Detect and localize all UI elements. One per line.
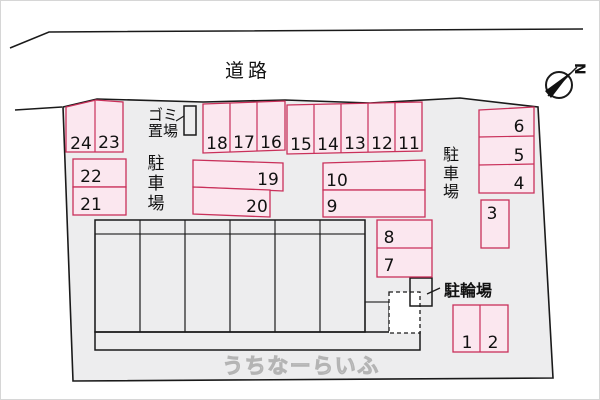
- road-label: 道路: [225, 60, 271, 82]
- bicycle-label: 駐輪場: [444, 281, 492, 300]
- space-number-11: 11: [398, 134, 420, 154]
- space-number-23: 23: [98, 133, 120, 153]
- space-number-13: 13: [344, 134, 366, 154]
- space-number-4: 4: [514, 174, 525, 194]
- space-number-24: 24: [70, 134, 92, 154]
- parking-space-6-4: [479, 107, 534, 193]
- space-number-21: 21: [80, 195, 102, 215]
- space-number-10: 10: [326, 171, 348, 191]
- parking-label-right: 駐 車 場: [443, 145, 459, 201]
- parking-right-char-1: 駐: [443, 145, 459, 164]
- space-number-1: 1: [462, 333, 473, 353]
- parking-layout-svg: 道路: [0, 0, 600, 400]
- space-number-8: 8: [384, 228, 395, 248]
- parking-left-char-1: 駐: [148, 154, 165, 174]
- watermark: うちなーらいふ: [222, 354, 380, 378]
- space-number-20: 20: [246, 197, 268, 217]
- space-number-5: 5: [514, 146, 525, 166]
- parking-space-9: [323, 190, 425, 217]
- space-number-7: 7: [384, 256, 395, 276]
- space-number-3: 3: [487, 204, 498, 224]
- space-number-2: 2: [488, 333, 499, 353]
- space-number-12: 12: [371, 134, 393, 154]
- parking-right-char-3: 場: [443, 182, 459, 201]
- parking-label-left: 駐 車 場: [148, 154, 165, 214]
- space-number-15: 15: [290, 135, 312, 155]
- bicycle-area-dashed: [389, 292, 420, 333]
- space-number-14: 14: [317, 135, 339, 155]
- space-number-22: 22: [80, 167, 102, 187]
- parking-left-char-2: 車: [148, 174, 165, 194]
- parking-left-char-3: 場: [148, 194, 165, 214]
- space-number-17: 17: [233, 133, 255, 153]
- space-number-9: 9: [327, 197, 338, 217]
- space-number-19: 19: [257, 170, 279, 190]
- compass-north-label: N: [571, 63, 587, 75]
- site-plan-image: 道路: [0, 0, 600, 400]
- compass: N: [545, 63, 587, 98]
- garbage-label-line2: 置場: [148, 122, 178, 140]
- space-number-6: 6: [514, 117, 525, 137]
- road-lower-edge: [15, 107, 62, 110]
- parking-right-char-2: 車: [443, 164, 459, 183]
- road-upper-edge: [10, 29, 583, 48]
- space-number-18: 18: [206, 134, 228, 154]
- space-number-16: 16: [260, 133, 282, 153]
